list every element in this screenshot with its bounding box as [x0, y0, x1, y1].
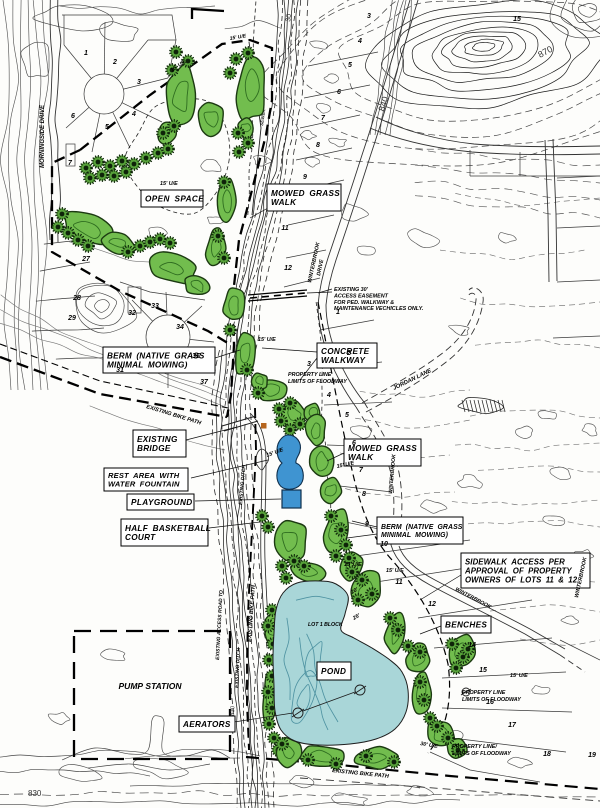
- svg-text:LIMITS OF FLOODWAY: LIMITS OF FLOODWAY: [452, 751, 511, 757]
- svg-text:EXISTING 30': EXISTING 30': [334, 287, 369, 293]
- svg-text:PUMP STATION: PUMP STATION: [119, 681, 183, 691]
- svg-text:10: 10: [380, 541, 388, 548]
- svg-text:31: 31: [116, 367, 124, 374]
- svg-text:MOWED GRASS: MOWED GRASS: [348, 444, 417, 453]
- svg-text:REST AREA WITH: REST AREA WITH: [108, 471, 180, 480]
- svg-text:PROPERTY LINE: PROPERTY LINE: [462, 690, 506, 696]
- svg-text:6: 6: [352, 440, 356, 447]
- svg-text:15: 15: [479, 667, 487, 674]
- svg-text:4: 4: [131, 111, 136, 118]
- svg-text:MINIMAL MOWING): MINIMAL MOWING): [381, 532, 449, 539]
- svg-text:2: 2: [112, 59, 117, 66]
- svg-text:9: 9: [303, 174, 307, 181]
- svg-text:5: 5: [348, 62, 352, 69]
- svg-text:12: 12: [428, 601, 436, 608]
- svg-text:8: 8: [362, 491, 366, 498]
- svg-text:CONCRETE: CONCRETE: [321, 347, 370, 356]
- svg-text:830: 830: [230, 705, 236, 716]
- svg-text:6: 6: [71, 113, 75, 120]
- svg-text:15: 15: [513, 16, 521, 23]
- svg-text:15' U/E: 15' U/E: [386, 568, 404, 574]
- svg-text:28: 28: [72, 295, 81, 302]
- svg-text:POND: POND: [321, 667, 346, 676]
- svg-text:30: 30: [285, 13, 293, 22]
- svg-text:BERM (NATIVE GRASS: BERM (NATIVE GRASS: [381, 524, 463, 531]
- svg-text:PROPERTY LINE: PROPERTY LINE: [288, 372, 332, 378]
- svg-text:LOT 1 BLOCK: LOT 1 BLOCK: [308, 622, 344, 628]
- svg-text:34: 34: [176, 324, 184, 331]
- svg-text:WALKWAY: WALKWAY: [321, 356, 366, 365]
- svg-text:3: 3: [367, 13, 371, 20]
- svg-text:BRIDGE: BRIDGE: [137, 444, 171, 453]
- svg-text:PROPERTY LINE/: PROPERTY LINE/: [452, 744, 497, 750]
- svg-text:5: 5: [345, 412, 349, 419]
- svg-text:MORNINGSIDE DRIVE: MORNINGSIDE DRIVE: [40, 104, 46, 168]
- svg-text:15' U/E: 15' U/E: [160, 181, 178, 187]
- svg-text:BENCHES: BENCHES: [445, 621, 487, 630]
- svg-text:MOWED GRASS: MOWED GRASS: [271, 189, 340, 198]
- svg-text:830: 830: [28, 789, 42, 798]
- svg-text:2: 2: [346, 350, 351, 357]
- svg-text:FOR PED. WALKWAY &: FOR PED. WALKWAY &: [334, 300, 394, 306]
- svg-text:EXISTING: EXISTING: [137, 435, 178, 444]
- svg-text:18: 18: [543, 751, 551, 758]
- svg-text:HALF BASKETBALL: HALF BASKETBALL: [125, 524, 211, 533]
- svg-text:11: 11: [395, 579, 402, 586]
- svg-text:6: 6: [337, 89, 341, 96]
- svg-text:16: 16: [486, 699, 494, 706]
- svg-text:5: 5: [105, 124, 109, 131]
- svg-text:3: 3: [137, 79, 141, 86]
- svg-text:OPEN SPACE: OPEN SPACE: [145, 195, 204, 204]
- svg-text:3: 3: [307, 361, 311, 368]
- svg-text:29: 29: [67, 315, 76, 322]
- svg-text:AERATORS: AERATORS: [182, 720, 231, 729]
- svg-text:27: 27: [81, 256, 91, 263]
- svg-text:15' U/E: 15' U/E: [344, 562, 362, 568]
- svg-text:19: 19: [588, 752, 596, 759]
- svg-text:APPROVAL OF PROPERTY: APPROVAL OF PROPERTY: [464, 566, 572, 575]
- svg-text:LIMITS OF FLOODWAY: LIMITS OF FLOODWAY: [288, 379, 347, 385]
- svg-text:WALK: WALK: [271, 198, 297, 207]
- svg-text:OWNERS OF LOTS 11 & 12: OWNERS OF LOTS 11 & 12: [465, 575, 578, 584]
- svg-text:14: 14: [468, 642, 476, 649]
- svg-text:37: 37: [200, 379, 209, 386]
- svg-text:32: 32: [128, 310, 136, 317]
- svg-text:15' U/E: 15' U/E: [258, 337, 276, 343]
- svg-text:1: 1: [336, 309, 340, 316]
- svg-text:15' U/E: 15' U/E: [510, 673, 528, 679]
- svg-text:ACCESS EASEMENT: ACCESS EASEMENT: [333, 293, 389, 299]
- svg-text:12: 12: [284, 265, 292, 272]
- svg-text:1: 1: [84, 50, 88, 57]
- svg-text:SIDEWALK ACCESS PER: SIDEWALK ACCESS PER: [465, 557, 565, 566]
- svg-text:4: 4: [326, 392, 331, 399]
- svg-text:WATER FOUNTAIN: WATER FOUNTAIN: [108, 480, 180, 489]
- svg-text:4: 4: [357, 38, 362, 45]
- svg-text:PLAYGROUND: PLAYGROUND: [131, 498, 193, 507]
- svg-text:COURT: COURT: [125, 533, 156, 542]
- svg-text:MAINTENANCE VECHICLES ONLY.: MAINTENANCE VECHICLES ONLY.: [334, 306, 424, 312]
- svg-text:11: 11: [281, 225, 288, 232]
- svg-text:9: 9: [365, 521, 369, 528]
- svg-text:BERM (NATIVE GRASS: BERM (NATIVE GRASS: [107, 351, 205, 360]
- svg-text:8: 8: [316, 142, 320, 149]
- svg-text:33: 33: [151, 303, 159, 310]
- svg-text:17: 17: [508, 722, 517, 729]
- svg-text:35: 35: [192, 353, 200, 360]
